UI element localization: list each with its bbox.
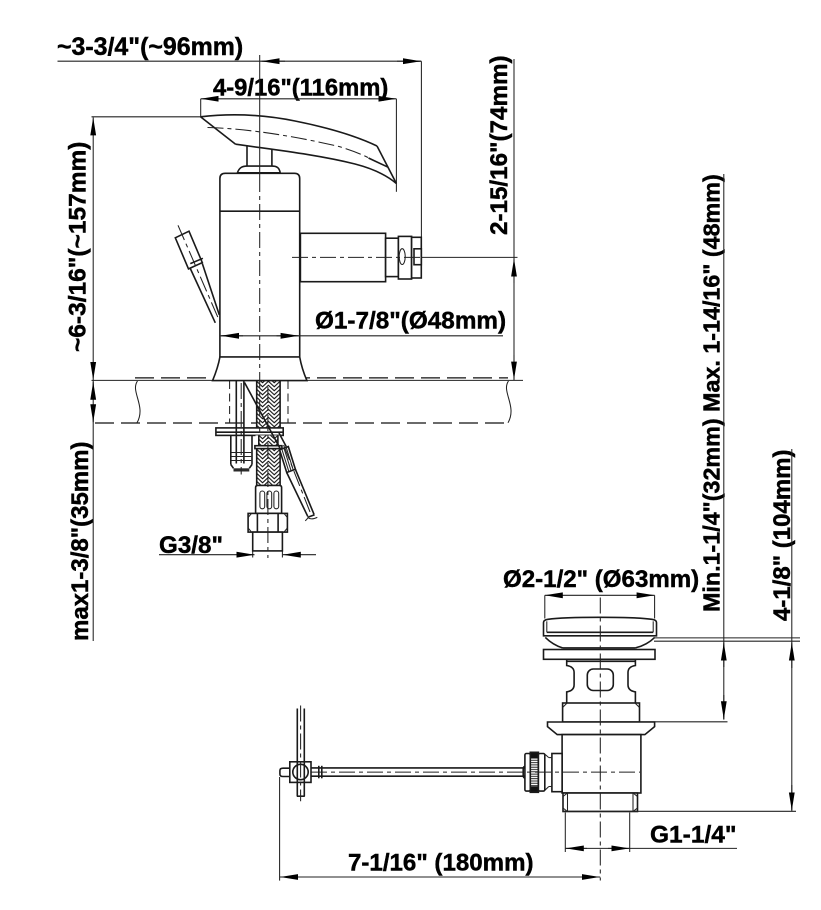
- svg-text:~3-3/4"(~96mm): ~3-3/4"(~96mm): [57, 33, 243, 61]
- svg-text:G1-1/4": G1-1/4": [650, 822, 737, 849]
- svg-text:Ø1-7/8"(Ø48mm): Ø1-7/8"(Ø48mm): [315, 308, 506, 335]
- svg-text:2-15/16"(74mm): 2-15/16"(74mm): [486, 55, 513, 235]
- svg-text:Min.1-1/4"(32mm) Max. 1-14/16": Min.1-1/4"(32mm) Max. 1-14/16" (48mm): [699, 174, 725, 612]
- svg-text:4-9/16"(116mm): 4-9/16"(116mm): [213, 75, 388, 102]
- svg-text:Ø2-1/2" (Ø63mm): Ø2-1/2" (Ø63mm): [503, 566, 699, 593]
- svg-text:7-1/16" (180mm): 7-1/16" (180mm): [348, 850, 534, 877]
- svg-text:max1-3/8"(35mm): max1-3/8"(35mm): [67, 442, 94, 641]
- svg-text:~6-3/16"(~157mm): ~6-3/16"(~157mm): [65, 142, 92, 352]
